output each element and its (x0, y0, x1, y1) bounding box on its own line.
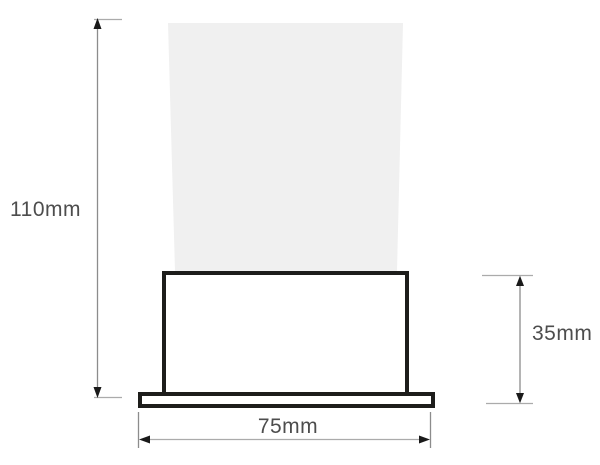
base-width-arrow-left-icon (139, 436, 150, 444)
overall-height-arrow-down-icon (94, 387, 102, 398)
body-height-label: 35mm (532, 322, 592, 345)
overall-height-dimension: 110mm (10, 18, 122, 398)
base-width-label: 75mm (258, 415, 318, 438)
body-height-dimension: 35mm (482, 276, 592, 404)
base-width-arrow-right-icon (419, 436, 430, 444)
light-beam-shape (168, 23, 403, 271)
mounting-flange-outline (140, 394, 433, 406)
body-height-arrow-up-icon (516, 276, 524, 286)
base-width-dimension: 75mm (139, 412, 431, 448)
body-height-arrow-down-icon (516, 393, 524, 403)
overall-height-label: 110mm (10, 198, 81, 221)
dimension-diagram: 110mm 35mm 75mm (0, 0, 600, 465)
dimension-drawing-canvas: 110mm 35mm 75mm (0, 0, 600, 465)
fixture-body-outline (164, 273, 407, 394)
